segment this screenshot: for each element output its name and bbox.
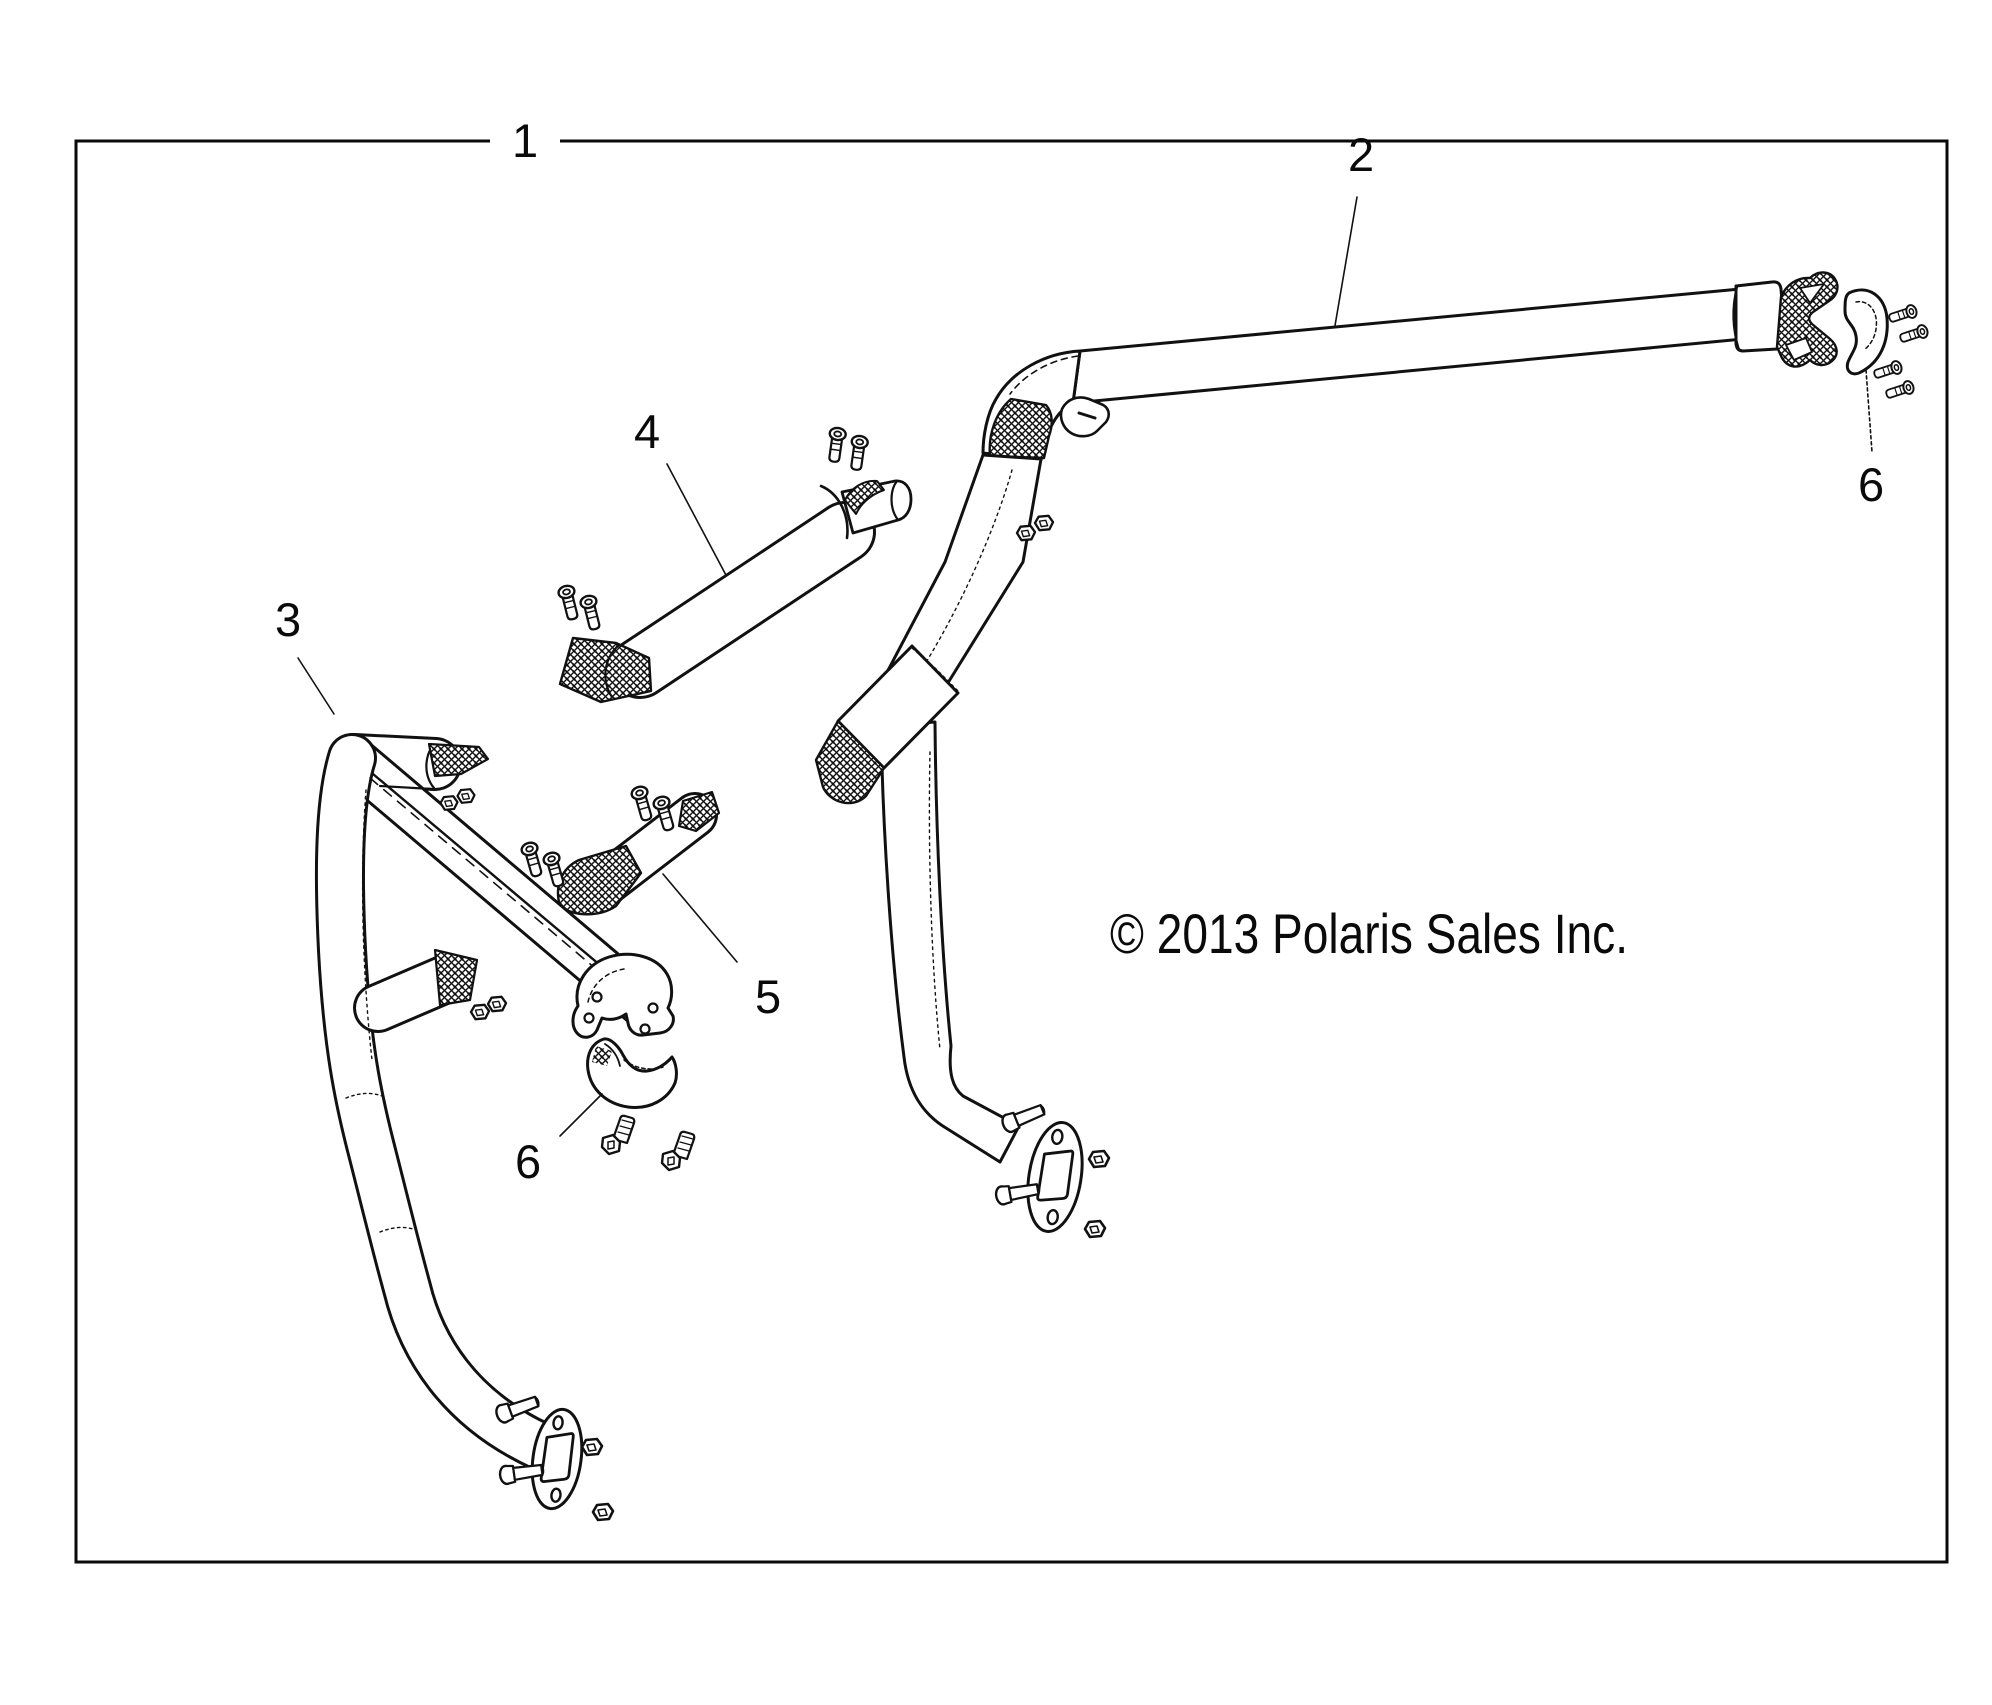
svg-text:6: 6 [1858,458,1884,511]
svg-text:1: 1 [512,114,538,167]
svg-text:© 2013 Polaris Sales Inc.: © 2013 Polaris Sales Inc. [1110,902,1628,965]
svg-text:5: 5 [755,970,781,1023]
svg-text:6: 6 [515,1135,541,1188]
svg-text:3: 3 [275,593,301,646]
svg-text:4: 4 [634,405,660,458]
svg-text:2: 2 [1348,128,1374,181]
